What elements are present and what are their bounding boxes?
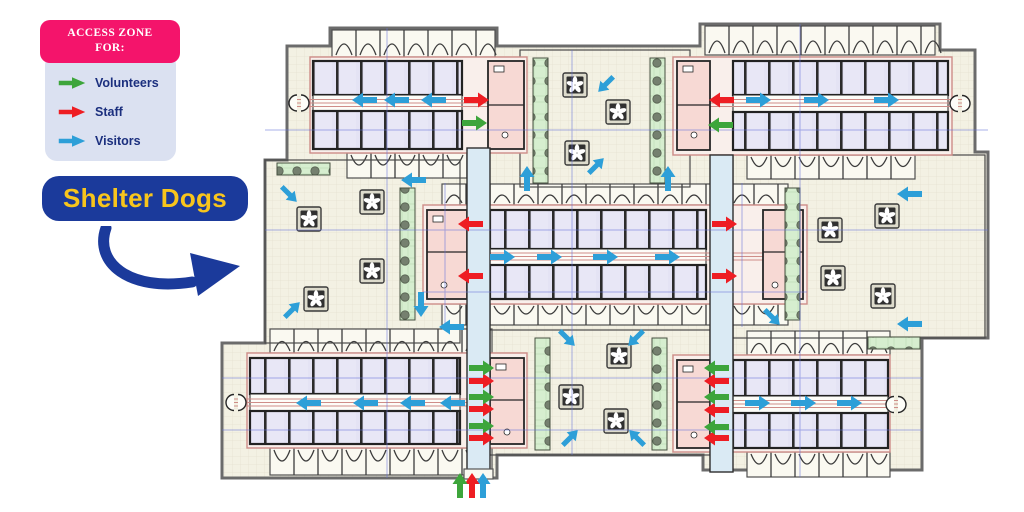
kennel-row (250, 411, 460, 444)
ventilation-fan-icon (360, 190, 384, 214)
main-entrance (464, 469, 493, 479)
ventilation-fan-icon (559, 385, 583, 409)
kennel-row (733, 112, 948, 150)
ventilation-fan-icon (821, 266, 845, 290)
legend-item-volunteers: Volunteers (57, 75, 168, 91)
legend-title-line2: FOR: (44, 41, 176, 56)
legend-item-staff: Staff (57, 104, 168, 120)
planted-strip (400, 188, 415, 320)
legend-label-staff: Staff (95, 105, 123, 119)
planted-strip (277, 163, 330, 175)
ventilation-fan-icon (360, 259, 384, 283)
ventilation-fan-icon (297, 207, 321, 231)
wing-top-right (673, 57, 970, 155)
ventilation-fan-icon (871, 284, 895, 308)
kennel-row (490, 265, 706, 299)
planted-strip (652, 338, 667, 450)
callout-curved-arrow (90, 226, 250, 306)
legend-item-visitors: Visitors (57, 133, 168, 149)
ventilation-fan-icon (563, 73, 587, 97)
legend-label-volunteers: Volunteers (95, 76, 159, 90)
shelter-dogs-label: Shelter Dogs (42, 176, 248, 221)
ventilation-fan-icon (607, 344, 631, 368)
visitors-arrow-icon (57, 133, 87, 149)
ventilation-fan-icon (875, 204, 899, 228)
legend-body: Volunteers Staff Visitors (45, 53, 176, 161)
staff-arrow-icon (57, 104, 87, 120)
planted-strip (785, 188, 800, 320)
planted-strip (650, 58, 665, 183)
ventilation-fan-icon (604, 409, 628, 433)
ventilation-fan-icon (606, 100, 630, 124)
wing-top-left (289, 57, 527, 153)
access-zone-legend: ACCESS ZONE FOR: Volunteers Staff Visito… (40, 20, 180, 161)
kennel-row (250, 358, 460, 394)
shelter-dogs-text: Shelter Dogs (63, 183, 227, 213)
volunteers-arrow-icon (57, 75, 87, 91)
legend-header: ACCESS ZONE FOR: (40, 20, 180, 63)
planted-strip (533, 58, 548, 183)
legend-title-line1: ACCESS ZONE (44, 26, 176, 41)
planted-strip (535, 338, 550, 450)
planted-strip (868, 337, 920, 349)
ventilation-fan-icon (565, 141, 589, 165)
ventilation-fan-icon (304, 287, 328, 311)
kennel-row (733, 61, 948, 95)
legend-label-visitors: Visitors (95, 134, 141, 148)
